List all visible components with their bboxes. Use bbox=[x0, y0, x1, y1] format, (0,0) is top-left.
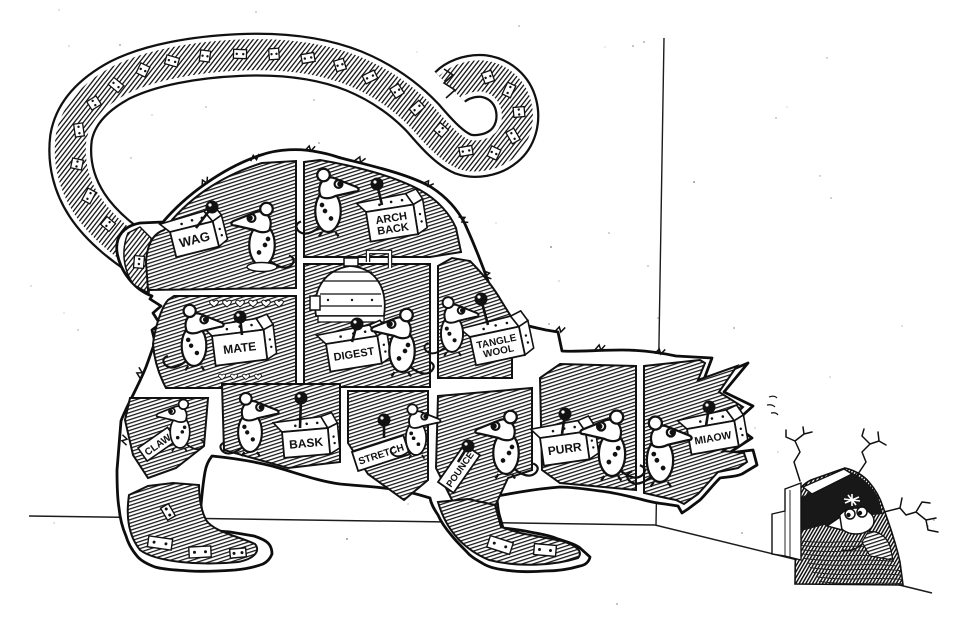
svg-text:BASK: BASK bbox=[289, 435, 324, 452]
